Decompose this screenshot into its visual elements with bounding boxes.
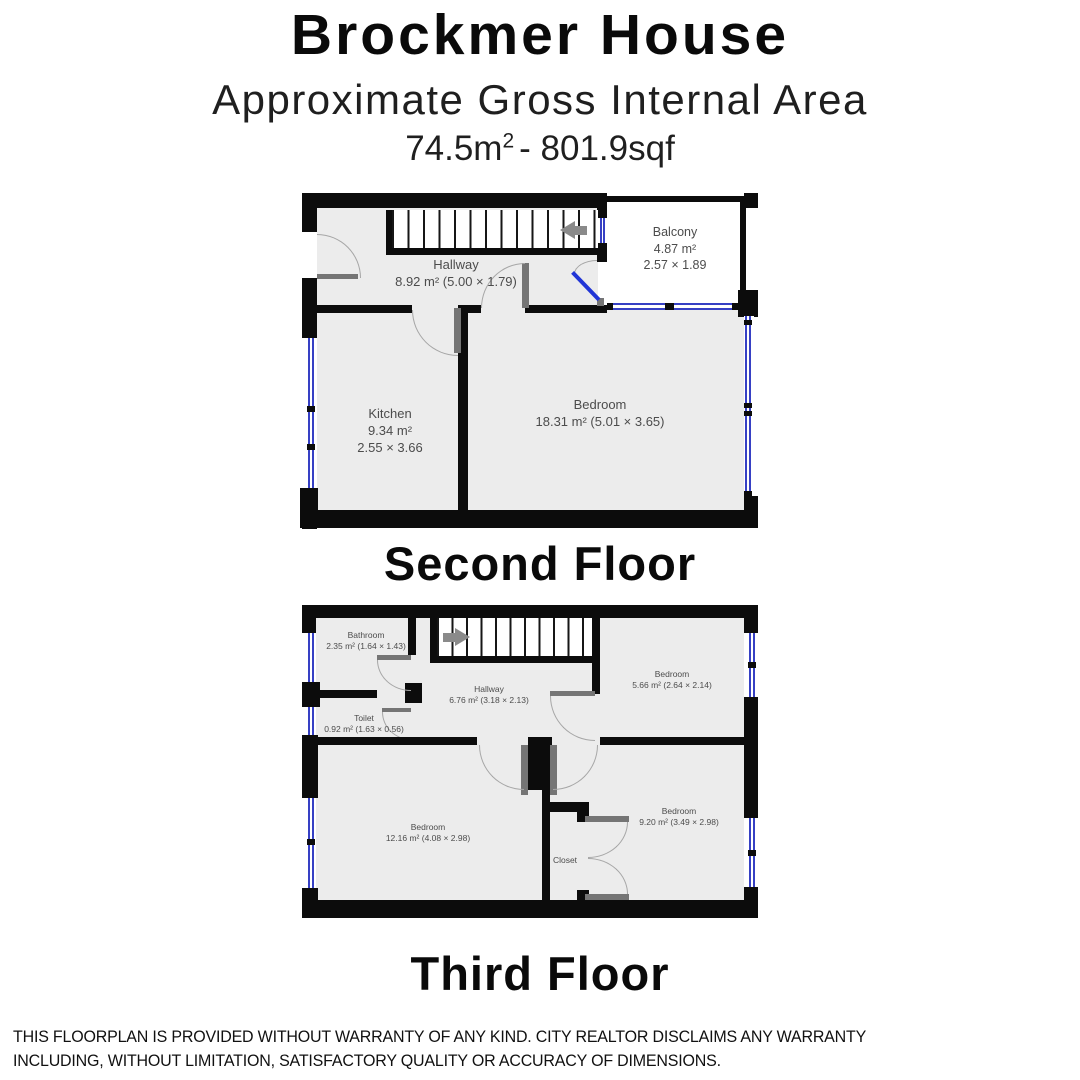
room-area: 4.87 m² (605, 241, 745, 258)
window-divider (748, 662, 756, 668)
wall (302, 193, 317, 232)
third-floor-plan: Bathroom 2.35 m² (1.64 × 1.43) Hallway 6… (302, 605, 758, 918)
third-floor-title: Third Floor (0, 946, 1080, 1001)
wall (302, 900, 758, 918)
room-dims: 2.55 × 3.66 (320, 439, 460, 456)
room-area: 9.34 m² (320, 422, 460, 439)
wall (302, 278, 317, 338)
room-name: Kitchen (320, 405, 460, 422)
room-name: Bedroom (620, 669, 724, 680)
area-m: 74.5m (405, 129, 502, 168)
wall (744, 887, 758, 918)
room-label-hallway: Hallway 6.76 m² (3.18 × 2.13) (439, 684, 539, 706)
room-name: Hallway (356, 256, 556, 273)
window-divider (307, 839, 315, 845)
room-dims: 8.92 m² (5.00 × 1.79) (356, 273, 556, 290)
stair-side-wall (430, 656, 593, 663)
wall (302, 737, 477, 745)
wall (302, 888, 318, 918)
arrow-tail (443, 633, 455, 642)
window-divider (748, 850, 756, 856)
wall (458, 305, 481, 313)
page-title: Brockmer House (0, 2, 1080, 68)
arrow-tail (575, 226, 587, 235)
room-dims: 6.76 m² (3.18 × 2.13) (439, 695, 539, 706)
wall-corner (738, 290, 758, 317)
disclaimer-line-2: INCLUDING, WITHOUT LIMITATION, SATISFACT… (13, 1052, 721, 1071)
wall (525, 305, 607, 313)
room-label-bathroom: Bathroom 2.35 m² (1.64 × 1.43) (316, 630, 416, 652)
window-divider (744, 411, 752, 416)
wall (302, 605, 316, 633)
wall (744, 496, 758, 528)
wall (744, 697, 758, 818)
window-divider (744, 403, 752, 408)
balcony-wall (607, 196, 744, 202)
disclaimer-line-1: THIS FLOORPLAN IS PROVIDED WITHOUT WARRA… (13, 1028, 866, 1047)
room-label-closet: Closet (517, 855, 613, 866)
room-name: Hallway (439, 684, 539, 695)
room-name: Balcony (605, 224, 745, 241)
room-dims: 18.31 m² (5.01 × 3.65) (510, 413, 690, 430)
arrow-head (455, 628, 470, 646)
second-floor-plan: Hallway 8.92 m² (5.00 × 1.79) Balcony 4.… (300, 193, 758, 528)
wall (302, 193, 607, 208)
room-name: Bedroom (374, 822, 482, 833)
area-sqf: - 801.9sqf (519, 129, 675, 168)
second-floor-title: Second Floor (0, 536, 1080, 591)
window-divider (307, 406, 315, 412)
window-divider (307, 444, 315, 450)
wall (597, 195, 607, 218)
bathroom-wall (316, 690, 377, 698)
wall (600, 737, 746, 745)
room-dims: 12.16 m² (4.08 × 2.98) (374, 833, 482, 844)
floorplan-page: Brockmer House Approximate Gross Interna… (0, 0, 1080, 1080)
arrow-head (560, 221, 575, 239)
wall (317, 305, 412, 313)
wall-corner (744, 193, 758, 208)
room-label-bedroom: Bedroom 18.31 m² (5.01 × 3.65) (510, 396, 690, 430)
room-name: Closet (517, 855, 613, 866)
room-name: Toilet (314, 713, 414, 724)
page-subtitle: Approximate Gross Internal Area (0, 76, 1080, 124)
room-label-balcony: Balcony 4.87 m² 2.57 × 1.89 (605, 224, 745, 274)
window (308, 338, 314, 492)
closet-door (585, 894, 629, 900)
wall (592, 618, 600, 694)
room-dims: 2.57 × 1.89 (605, 257, 745, 274)
stair-up-arrow-right-icon (443, 628, 470, 646)
wall (300, 510, 758, 528)
stair-side-wall (386, 248, 598, 255)
room-name: Bathroom (316, 630, 416, 641)
window (308, 633, 314, 682)
room-dims: 0.92 m² (1.63 × 0.56) (314, 724, 414, 735)
room-name: Bedroom (510, 396, 690, 413)
room-label-bedroom-top-right: Bedroom 5.66 m² (2.64 × 2.14) (620, 669, 724, 691)
wall (744, 605, 758, 633)
room-dims: 5.66 m² (2.64 × 2.14) (620, 680, 724, 691)
room-label-toilet: Toilet 0.92 m² (1.63 × 0.56) (314, 713, 414, 735)
window-divider (744, 320, 752, 325)
room-label-hallway: Hallway 8.92 m² (5.00 × 1.79) (356, 256, 556, 290)
room-label-bedroom-bottom-right: Bedroom 9.20 m² (3.49 × 2.98) (625, 806, 733, 828)
gross-internal-area: 74.5m2- 801.9sqf (0, 129, 1080, 169)
room-dims: 9.20 m² (3.49 × 2.98) (625, 817, 733, 828)
room-label-bedroom-bottom-left: Bedroom 12.16 m² (4.08 × 2.98) (374, 822, 482, 844)
stair-up-arrow-left-icon (560, 221, 587, 239)
room-dims: 2.35 m² (1.64 × 1.43) (316, 641, 416, 652)
railing-tick (607, 303, 613, 310)
wall (302, 605, 758, 618)
room-label-kitchen: Kitchen 9.34 m² 2.55 × 3.66 (320, 405, 460, 456)
closet-wall (542, 745, 550, 900)
area-sup: 2 (502, 129, 514, 152)
railing-tick (665, 303, 674, 310)
room-name: Bedroom (625, 806, 733, 817)
